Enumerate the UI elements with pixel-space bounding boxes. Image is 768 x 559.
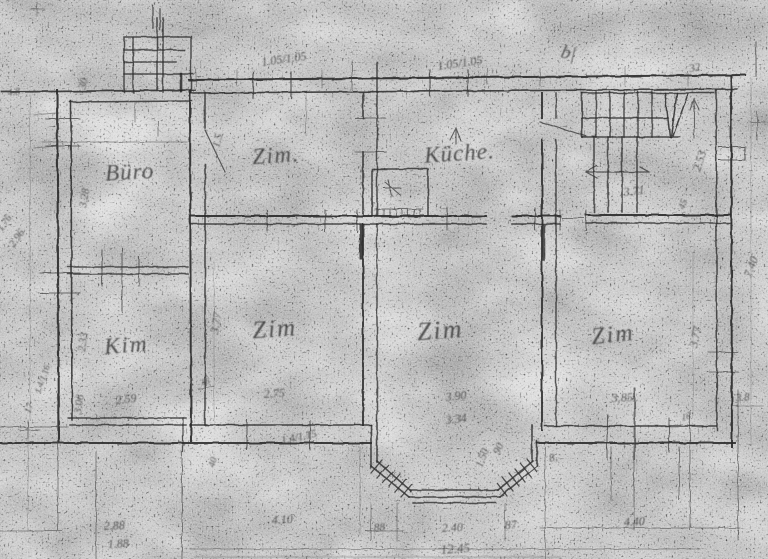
svg-text:3.90: 3.90 bbox=[444, 388, 467, 404]
svg-text:4.40: 4.40 bbox=[623, 514, 645, 529]
svg-text:3.85: 3.85 bbox=[610, 390, 633, 405]
svg-text:Zim: Zim bbox=[416, 314, 464, 346]
svg-text:2.59: 2.59 bbox=[115, 391, 137, 407]
svg-text:4.8: 4.8 bbox=[7, 86, 21, 99]
svg-text:3.8: 3.8 bbox=[735, 391, 751, 404]
svg-text:Küche.: Küche. bbox=[422, 138, 495, 168]
svg-text:2.88: 2.88 bbox=[103, 518, 125, 533]
svg-text:88: 88 bbox=[374, 521, 386, 534]
svg-text:4.10: 4.10 bbox=[271, 512, 293, 527]
svg-text:2.75: 2.75 bbox=[263, 386, 285, 401]
svg-text:Zim: Zim bbox=[590, 320, 636, 350]
svg-text:Büro: Büro bbox=[104, 158, 154, 186]
svg-text:Zim: Zim bbox=[251, 314, 298, 344]
svg-text:3.34: 3.34 bbox=[444, 411, 467, 427]
svg-text:2.40: 2.40 bbox=[441, 520, 463, 535]
svg-text:1.88: 1.88 bbox=[107, 536, 129, 551]
svg-text:12.45: 12.45 bbox=[440, 540, 471, 557]
svg-text:Kim: Kim bbox=[102, 331, 149, 359]
svg-text:87: 87 bbox=[504, 517, 518, 532]
svg-text:Zim.: Zim. bbox=[251, 141, 300, 169]
svg-text:3.71: 3.71 bbox=[622, 183, 645, 199]
